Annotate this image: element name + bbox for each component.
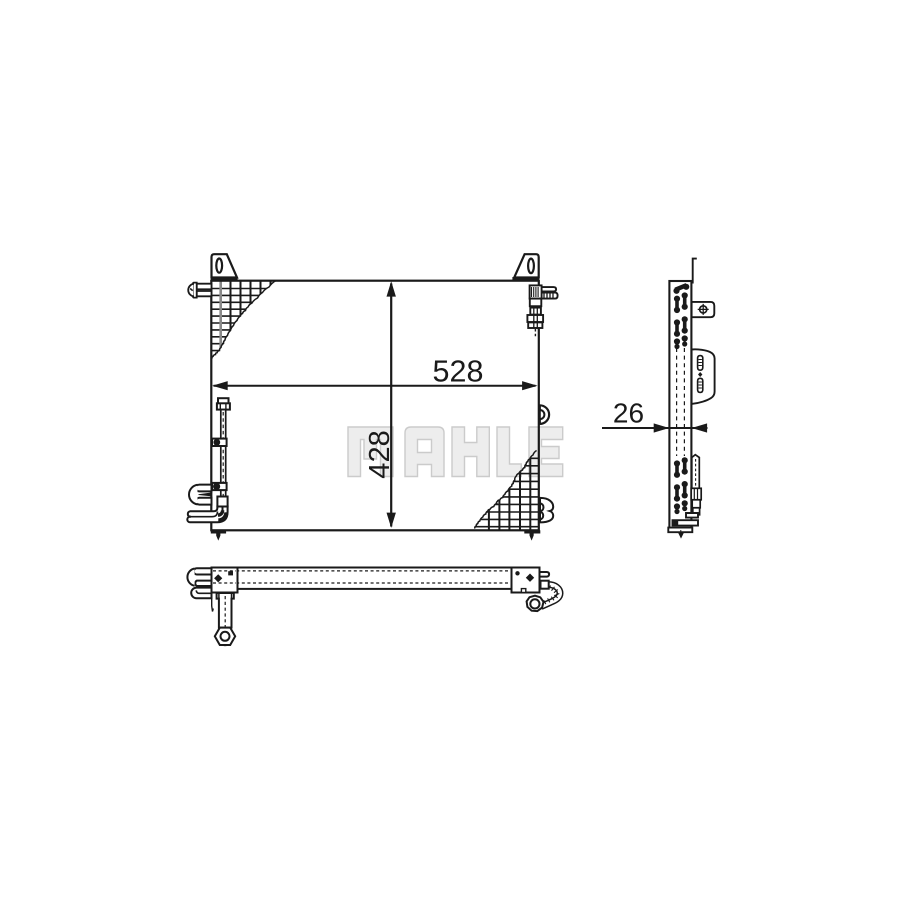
svg-text:528: 528 — [433, 355, 484, 389]
svg-text:428: 428 — [364, 430, 396, 478]
svg-text:26: 26 — [613, 397, 644, 428]
